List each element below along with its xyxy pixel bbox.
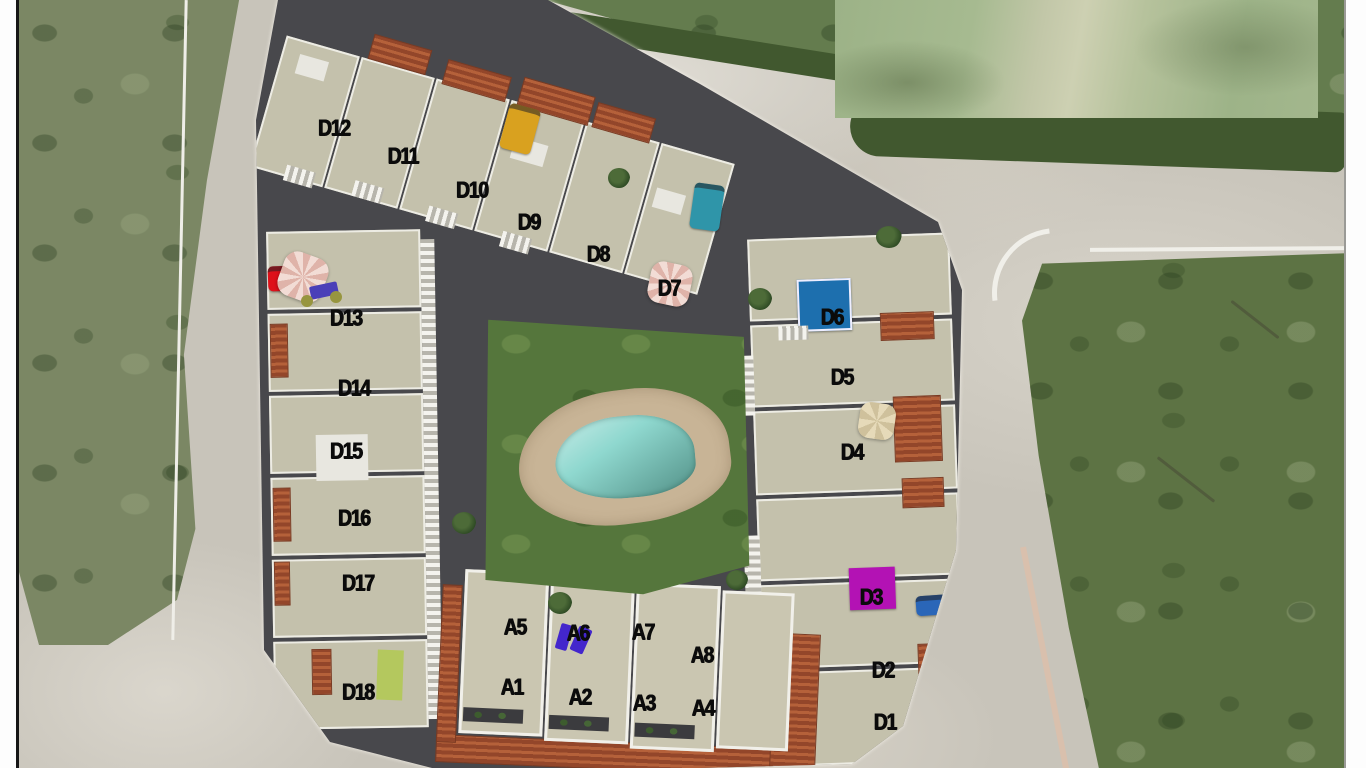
unit-label-d14[interactable]: D14: [338, 375, 370, 402]
unit-label-a2[interactable]: A2: [569, 684, 591, 711]
unit-label-d11[interactable]: D11: [388, 143, 419, 170]
unit-label-d16[interactable]: D16: [338, 505, 370, 532]
unit-label-a1[interactable]: A1: [501, 674, 523, 701]
unit-label-d10[interactable]: D10: [456, 177, 488, 204]
unit-label-d2[interactable]: D2: [872, 657, 894, 684]
unit-label-d18[interactable]: D18: [342, 679, 374, 706]
unit-label-a4[interactable]: A4: [692, 695, 714, 722]
unit-label-a7[interactable]: A7: [632, 619, 654, 646]
unit-label-d6[interactable]: D6: [821, 304, 843, 331]
unit-label-d3[interactable]: D3: [860, 584, 882, 611]
unit-label-d1[interactable]: D1: [874, 709, 896, 736]
unit-label-d15[interactable]: D15: [330, 438, 362, 465]
unit-label-d4[interactable]: D4: [841, 439, 863, 466]
unit-label-a5[interactable]: A5: [504, 614, 526, 641]
unit-label-a3[interactable]: A3: [633, 690, 655, 717]
unit-label-d8[interactable]: D8: [587, 241, 609, 268]
unit-label-d7[interactable]: D7: [658, 275, 680, 302]
unit-label-d9[interactable]: D9: [518, 209, 540, 236]
unit-labels-layer: D1D2D3D4D5D6D7D8D9D10D11D12D13D14D15D16D…: [0, 0, 1366, 768]
unit-label-d12[interactable]: D12: [318, 115, 350, 142]
unit-label-a8[interactable]: A8: [691, 642, 713, 669]
unit-label-a6[interactable]: A6: [567, 620, 589, 647]
site-plan: D1D2D3D4D5D6D7D8D9D10D11D12D13D14D15D16D…: [0, 0, 1366, 768]
unit-label-d5[interactable]: D5: [831, 364, 853, 391]
unit-label-d13[interactable]: D13: [330, 305, 362, 332]
unit-label-d17[interactable]: D17: [342, 570, 374, 597]
